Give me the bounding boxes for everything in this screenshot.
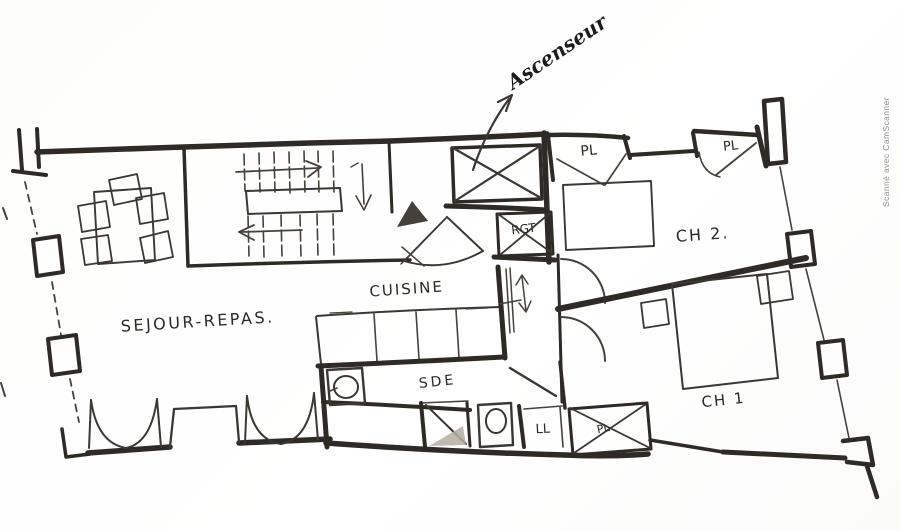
washbasin — [327, 368, 365, 405]
closet-top-left-label: PL — [580, 142, 598, 159]
floor-plan-drawing: RGT PL PL CH 2. CH 1 — [0, 0, 900, 530]
storage-rgt-label: RGT — [510, 221, 537, 238]
stair-treads-lower — [248, 214, 334, 258]
down-arrow — [351, 163, 371, 210]
entrance-marker — [397, 201, 428, 227]
chair — [140, 231, 173, 263]
room-label-bedroom1: CH 1 — [701, 389, 747, 412]
entrance-triangle — [397, 201, 428, 227]
nightstand-left — [641, 299, 669, 328]
floor-plan-scan: RGT PL PL CH 2. CH 1 — [0, 0, 900, 530]
shower-door-shade — [429, 426, 466, 446]
bed-ch1 — [672, 274, 778, 389]
staircase — [184, 142, 410, 266]
closet-top-left-pl: PL — [548, 135, 630, 185]
camscanner-watermark: Scanné avec CamScanner — [881, 97, 891, 207]
room-label-bedroom2: CH 2. — [675, 223, 730, 246]
dining-table — [94, 188, 155, 264]
left-facade-columns — [25, 182, 80, 422]
stair-direction-arrow-down — [242, 230, 302, 232]
closet-top-right-pl: PL — [693, 127, 766, 177]
washbasin-bowl — [334, 376, 358, 398]
entrance-door-swing — [401, 217, 483, 266]
closet-top-right-label: PL — [722, 138, 739, 155]
hall-angled-wall — [510, 368, 556, 396]
room-label-kitchen: CUISINE — [369, 277, 445, 300]
closet-bottom-pl: PL — [560, 362, 651, 455]
closet-bottom-label: PL — [596, 421, 612, 437]
room-label-living-dining: SEJOUR-REPAS. — [120, 307, 275, 335]
elevator-note-text: Ascenseur — [501, 9, 613, 95]
dining-table-set — [78, 174, 173, 265]
nightstand-right — [757, 271, 793, 304]
bed-ch2 — [563, 181, 654, 250]
door-swing-bedroom1 — [561, 317, 605, 361]
door-swing-bedroom2 — [561, 259, 605, 303]
stair-treads-upper — [244, 151, 334, 194]
bedroom2-furniture — [563, 181, 654, 250]
toilet-bowl — [486, 409, 506, 433]
room-label-shower-room: SDE — [418, 372, 457, 392]
stair-direction-arrow-up — [236, 168, 318, 172]
right-facade-columns — [764, 99, 849, 438]
sliding-door-arrow — [522, 277, 526, 311]
washing-machine-label: LL — [535, 422, 551, 438]
